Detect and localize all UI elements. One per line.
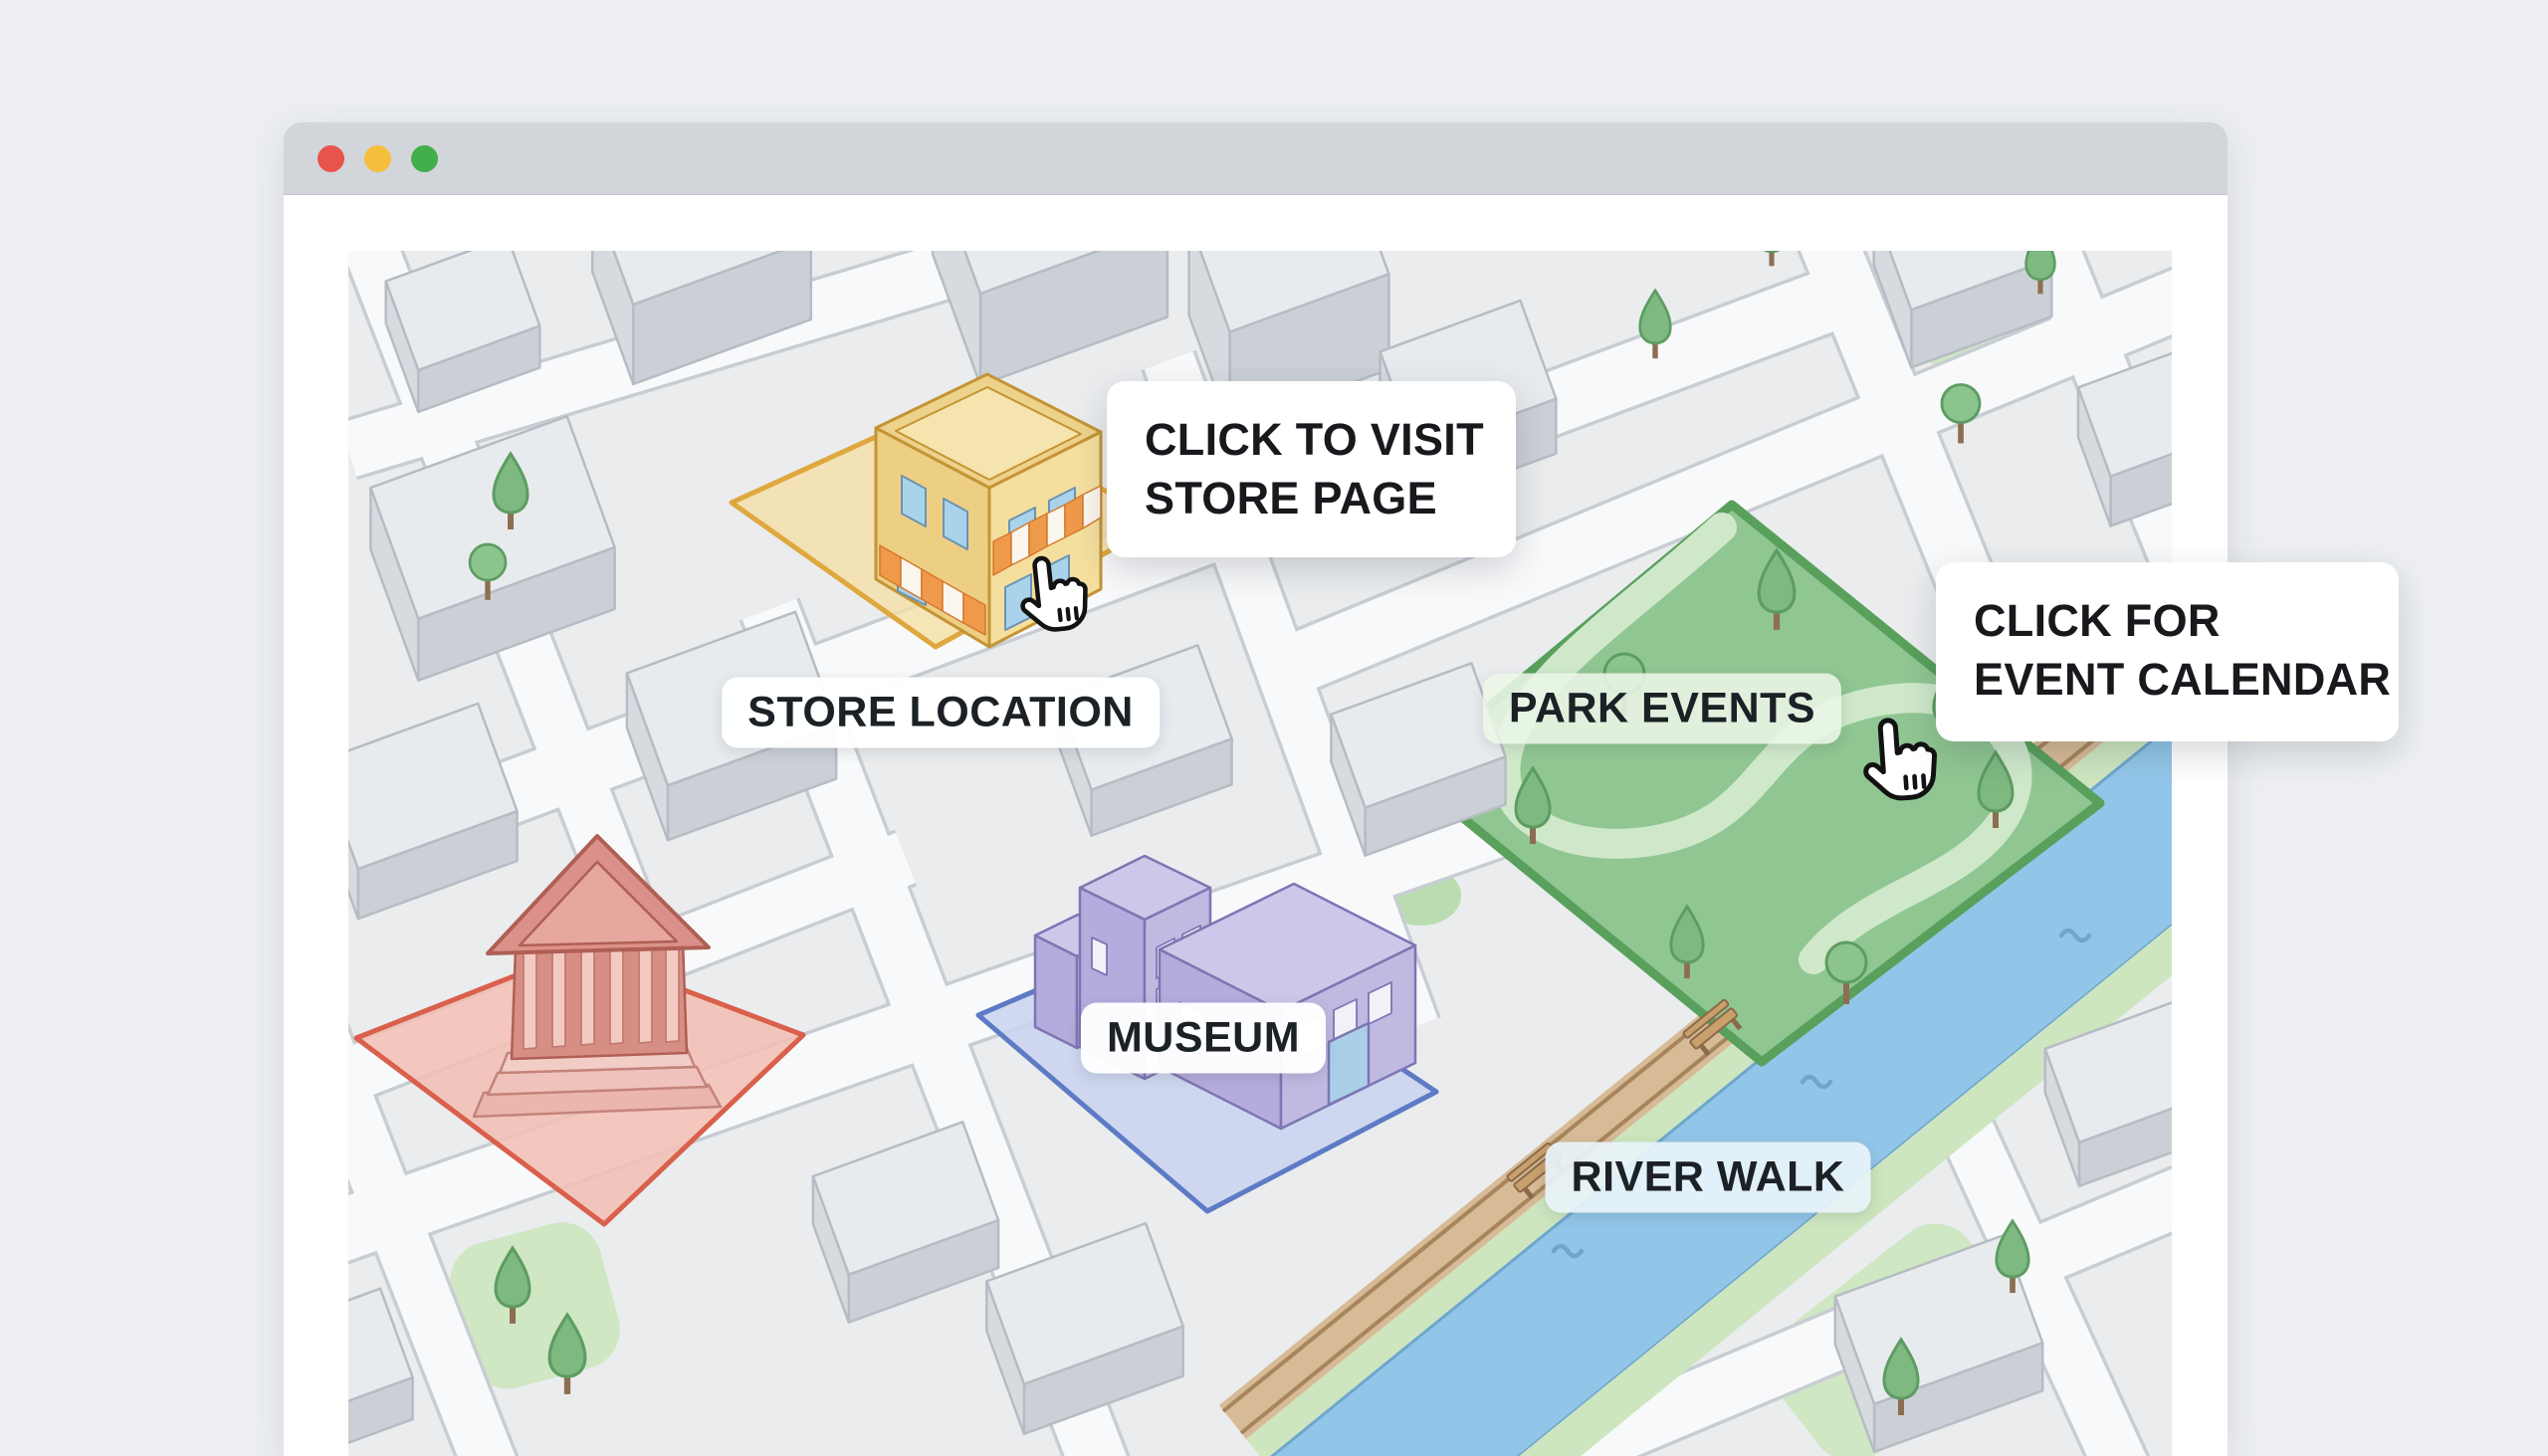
tooltip-event-calendar[interactable]: CLICK FOR EVENT CALENDAR [1936, 562, 2399, 741]
minimize-window-button[interactable] [364, 145, 391, 172]
tooltip-store-page[interactable]: CLICK TO VISIT STORE PAGE [1107, 381, 1516, 557]
close-window-button[interactable] [318, 145, 344, 172]
page: { "window": { "controls": [ {"name": "cl… [0, 0, 2548, 1422]
tooltip-store-line1: CLICK TO VISIT [1145, 410, 1478, 469]
tooltip-store-line2: STORE PAGE [1145, 469, 1478, 527]
label-museum: MUSEUM [1081, 1003, 1326, 1074]
tooltip-calendar-line1: CLICK FOR [1974, 591, 2361, 650]
browser-window: STORE LOCATION MUSEUM PARK EVENTS RIVER … [284, 122, 2228, 1456]
zoom-window-button[interactable] [411, 145, 438, 172]
label-store-location[interactable]: STORE LOCATION [722, 678, 1160, 748]
label-river-walk: RIVER WALK [1546, 1143, 1871, 1213]
city-map: STORE LOCATION MUSEUM PARK EVENTS RIVER … [348, 251, 2172, 1456]
label-park-events[interactable]: PARK EVENTS [1483, 674, 1841, 744]
window-titlebar [284, 122, 2228, 195]
tooltip-calendar-line2: EVENT CALENDAR [1974, 650, 2361, 709]
